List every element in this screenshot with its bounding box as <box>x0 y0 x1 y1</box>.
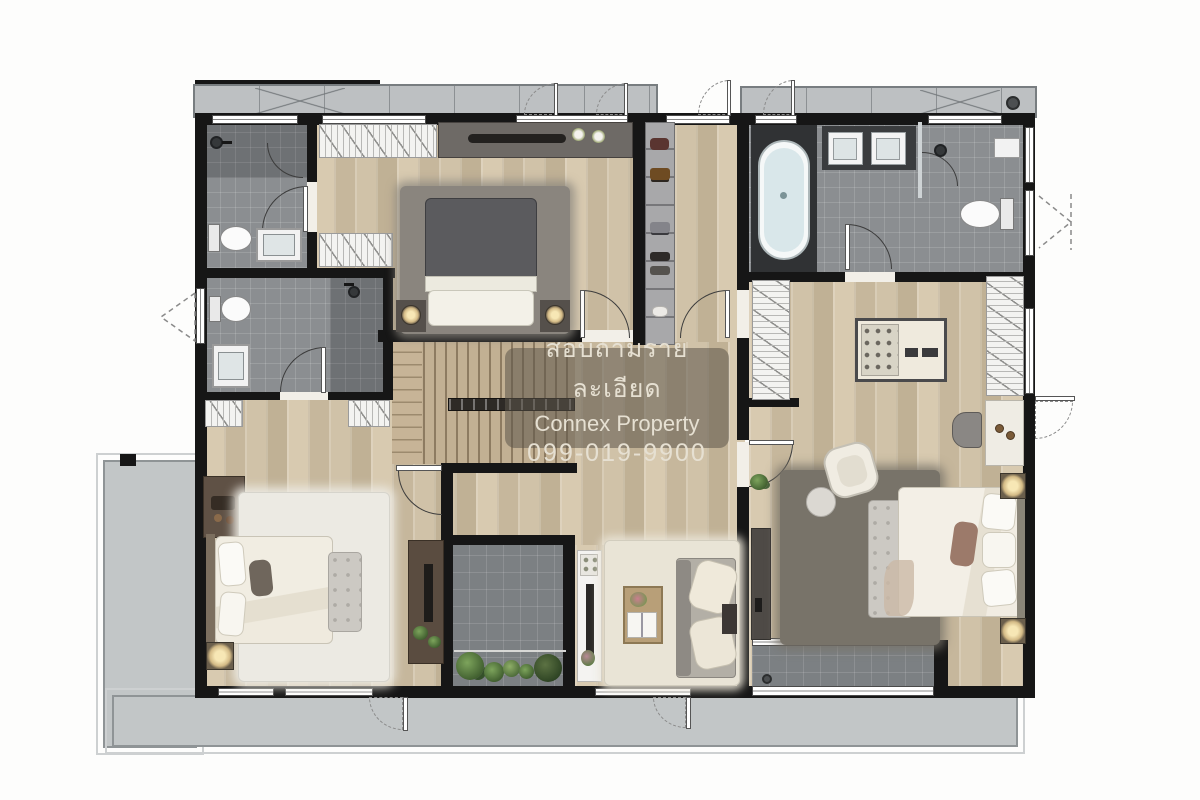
watermark-line-brand: Connex Property <box>505 411 729 437</box>
watermark: สอบถามรายละเอียด Connex Property 099-019… <box>505 348 729 448</box>
shower-glass <box>918 122 922 198</box>
casement-leaf-2 <box>624 83 628 116</box>
wall-void-top <box>441 535 575 545</box>
bed3-pillow <box>217 591 247 637</box>
ledge-brace-icon <box>255 88 345 114</box>
door-gap-walkin <box>737 290 749 338</box>
sink-basin-m2 <box>876 138 900 160</box>
casement-leaf-4 <box>791 80 795 116</box>
flower-living-icon <box>581 650 595 666</box>
sink-basin-2 <box>218 352 244 380</box>
vanity-desk <box>985 400 1024 466</box>
island-display-tray <box>861 324 899 376</box>
door-gap-bath1 <box>307 182 317 232</box>
slippers-icon <box>652 306 668 317</box>
tv-console-master <box>751 528 771 640</box>
wardrobe-walkin-right <box>986 276 1024 396</box>
bag-icon <box>650 138 669 150</box>
bed2-duvet <box>425 198 537 280</box>
window-swing-arrows-right <box>1037 190 1077 254</box>
nightstand-master-top <box>1000 473 1026 499</box>
bathtub-drain-icon <box>780 192 787 199</box>
island-drawer <box>922 348 938 357</box>
window-right-shower <box>1025 127 1034 183</box>
bed-master-pillow <box>982 532 1016 568</box>
toilet-bowl-1 <box>220 226 252 251</box>
bed2-pillows <box>428 290 534 326</box>
open-book-icon <box>627 612 657 638</box>
door-leaf-master <box>749 440 794 445</box>
plant-bedroom3 <box>413 626 428 640</box>
door-leaf-masterbath <box>845 224 850 270</box>
sink-basin-m1 <box>833 138 857 160</box>
window-bottom-living <box>595 688 691 696</box>
bed-master-headboard <box>1017 483 1025 621</box>
bed-master-drape <box>884 560 914 616</box>
window-top-corridor <box>666 115 730 124</box>
floor-plan: สอบถามรายละเอียด Connex Property 099-019… <box>0 0 1200 800</box>
shoes-icon <box>650 252 670 261</box>
bed-bench-bedroom3 <box>328 552 362 632</box>
window-top-bath1 <box>212 115 298 124</box>
window-swing-arrows-left <box>157 288 197 346</box>
shower-head-icon-2 <box>348 286 360 298</box>
coffee-set-icon <box>1006 431 1015 440</box>
stair-landing <box>392 340 422 464</box>
window-bottom-bedroom3-2 <box>285 688 373 696</box>
wall-void-right <box>563 540 575 692</box>
flowers-icon <box>572 128 585 141</box>
casement-leaf-1 <box>554 83 558 116</box>
drain-icon <box>1006 96 1020 110</box>
desk3-cup-icon <box>214 514 222 522</box>
shoes-icon <box>650 168 670 180</box>
bed3-pillow <box>217 541 247 587</box>
remote-icon <box>755 598 762 612</box>
wall-rightwing-2 <box>737 338 749 440</box>
door-leaf-bath2 <box>321 347 326 393</box>
window-right-toilet <box>1025 190 1034 256</box>
shrub <box>534 654 562 682</box>
wardrobe-bedroom3-left <box>205 400 243 427</box>
terrace-door-leaf-1 <box>403 697 408 731</box>
toilet-tank-1 <box>208 224 220 252</box>
master-balcony-floor <box>752 646 934 690</box>
door-gap-bath2 <box>280 392 328 400</box>
desk3-tray-icon <box>211 496 235 510</box>
window-bottom-bedroom3-1 <box>218 688 274 696</box>
flowers-icon <box>592 130 605 143</box>
plant-bedroom3 <box>428 636 441 648</box>
terrace-post <box>120 454 136 466</box>
desk-chair <box>952 412 982 448</box>
lamp-bed2-left <box>401 305 421 325</box>
coffee-set-icon <box>995 424 1004 433</box>
coffee-table-flowers-icon <box>630 592 647 607</box>
wall-balcony-right <box>934 640 948 698</box>
shower-arm-icon <box>222 141 232 144</box>
bed3-headboard <box>206 534 215 646</box>
walkin-ext-door-arc <box>1035 401 1073 439</box>
window-left-bath2 <box>196 288 205 344</box>
wardrobe-bedroom2-top <box>319 124 437 158</box>
shrub <box>456 652 484 680</box>
tv-bedroom3 <box>424 564 433 622</box>
corner-sink-m <box>994 138 1020 158</box>
window-right-walkin <box>1025 308 1034 394</box>
shoes-icon <box>650 222 670 233</box>
balcony-drain-icon <box>762 674 772 684</box>
watermark-line-phone: 099-019-9900 <box>505 439 729 468</box>
wall-corridor-left <box>633 122 645 345</box>
casement-arc-3 <box>698 80 730 115</box>
casement-leaf-3 <box>727 80 731 116</box>
sofa-back-cushions <box>676 560 691 676</box>
door-gap-master <box>737 442 749 487</box>
window-top-closet <box>322 115 426 124</box>
terrace-door-leaf-2 <box>686 697 691 729</box>
bathtub-basin <box>764 148 804 252</box>
terrace-bottom <box>112 695 1018 747</box>
wardrobe-bedroom3-right <box>348 400 390 427</box>
shrub <box>519 664 534 679</box>
door-gap-masterbath <box>845 272 895 282</box>
console-decor-icon <box>580 554 598 576</box>
door-leaf-bath1 <box>303 186 308 232</box>
wardrobe-walkin-left <box>752 280 790 400</box>
toilet-tank-2 <box>209 296 221 322</box>
wall-bath1-bath2 <box>195 268 395 278</box>
shower-arm-icon-2 <box>344 283 354 286</box>
island-drawer <box>905 348 918 357</box>
shrub <box>503 660 520 677</box>
wall-rightwing-1 <box>737 122 749 290</box>
window-top-masterbath-2 <box>928 115 1002 124</box>
railing-master-balcony <box>752 686 934 696</box>
sink-basin-1 <box>263 234 295 256</box>
bed3-throw <box>248 559 274 597</box>
ledge-brace-icon <box>920 90 1000 114</box>
lamp-bed2-right <box>545 305 565 325</box>
wardrobe-bedroom2-left <box>319 233 393 267</box>
watermark-line-thai: สอบถามรายละเอียด <box>505 329 729 409</box>
bed-master-pillow <box>980 568 1018 607</box>
plant-walkin <box>750 474 768 490</box>
nightstand-bedroom3 <box>206 642 234 670</box>
desk3-cup-icon <box>226 516 234 524</box>
shower-head-icon-m <box>934 144 947 157</box>
nightstand-master-bottom <box>1000 618 1026 644</box>
dresser-tray-icon <box>468 134 566 143</box>
shoes-icon <box>650 266 670 275</box>
toilet-bowl-m <box>960 200 1000 228</box>
side-table-living <box>722 604 737 634</box>
tv-living <box>586 584 594 654</box>
window-top-masterbath-1 <box>755 115 797 124</box>
shrub <box>484 662 504 682</box>
toilet-tank-m <box>1000 198 1014 230</box>
toilet-bowl-2 <box>221 296 251 322</box>
